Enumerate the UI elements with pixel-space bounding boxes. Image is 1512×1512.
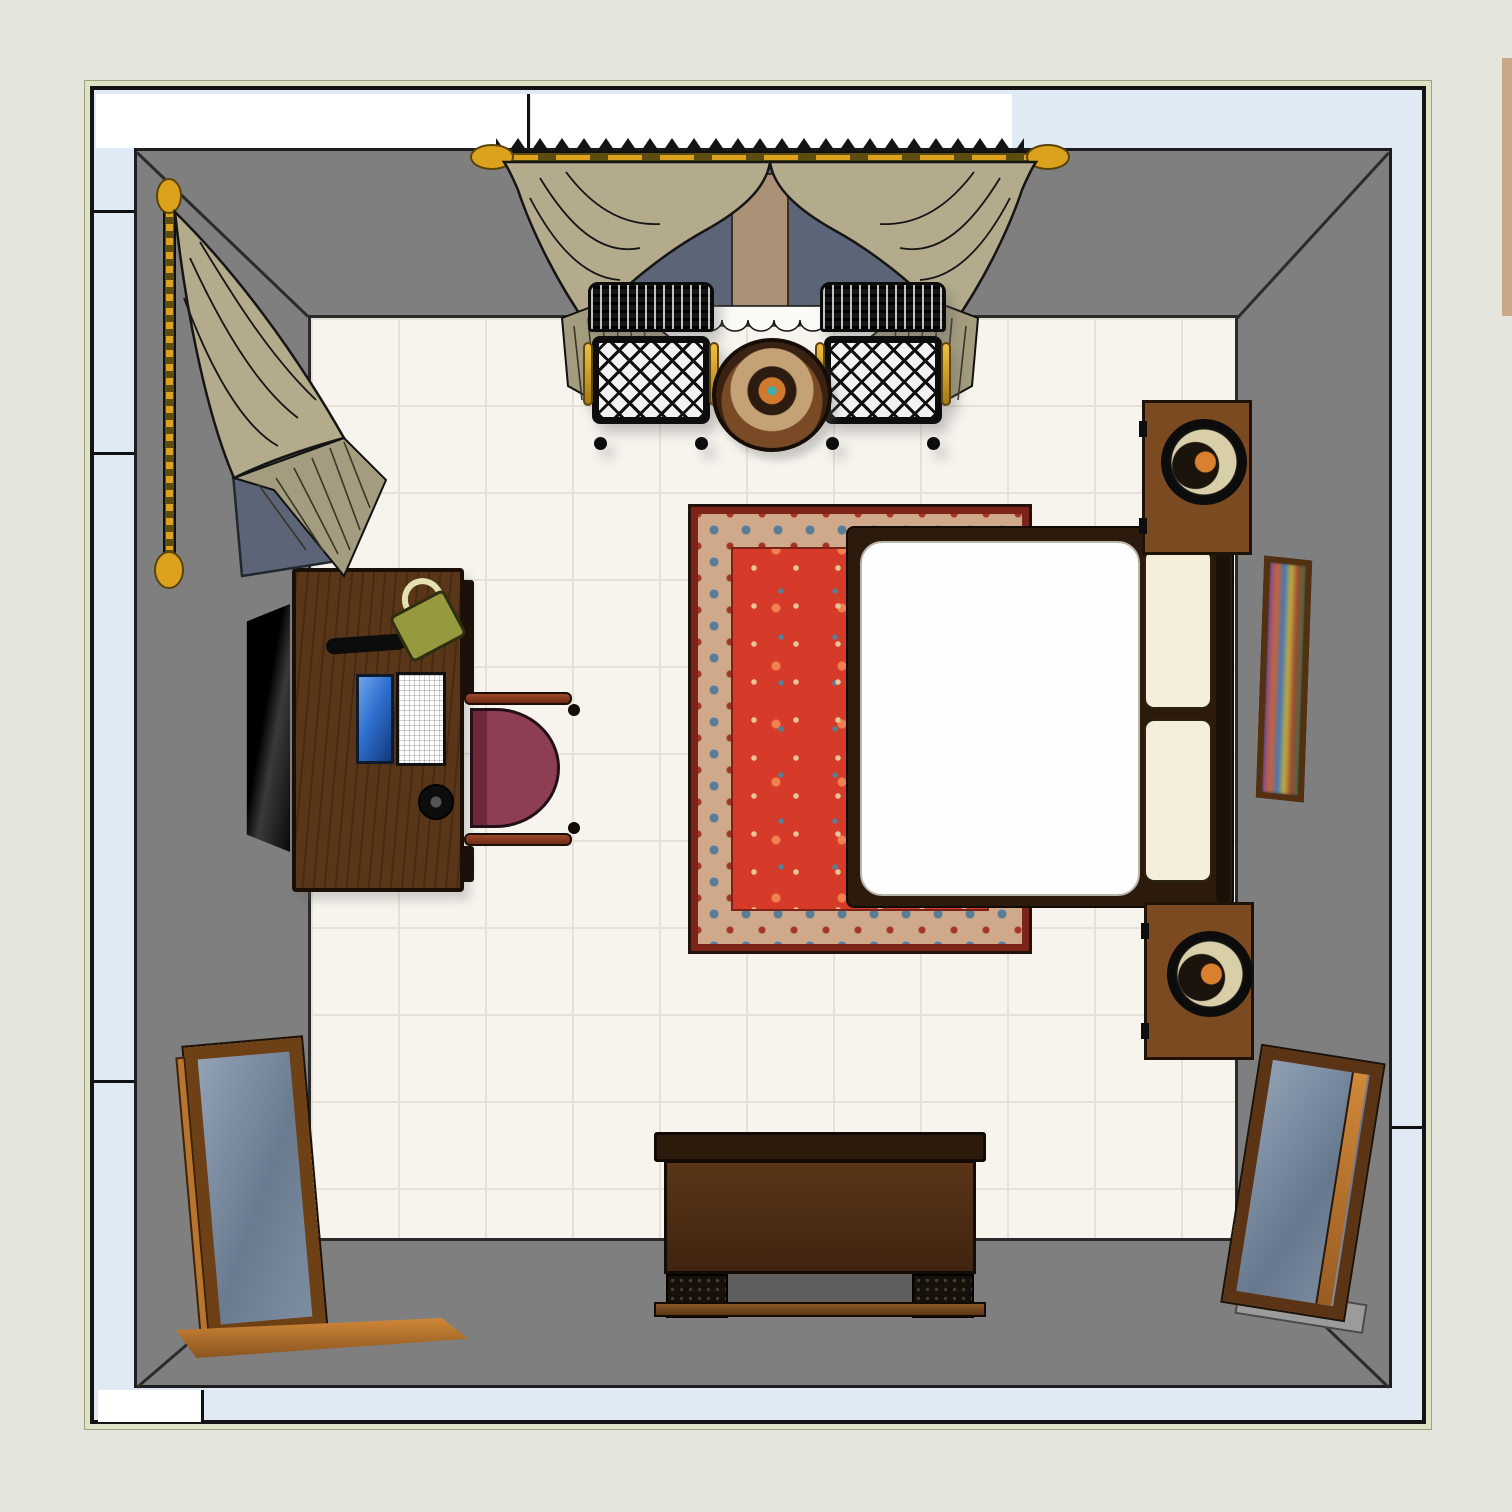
nightstand-bottom[interactable] bbox=[1144, 902, 1254, 1060]
dresser-front bbox=[664, 1160, 976, 1274]
chair-frame-post bbox=[941, 342, 951, 406]
table-lamp-icon[interactable] bbox=[1167, 931, 1253, 1017]
exterior-wall-top-left bbox=[96, 94, 530, 148]
laptop[interactable] bbox=[396, 672, 446, 766]
wall-tv[interactable] bbox=[242, 604, 290, 852]
floor-plan-canvas bbox=[0, 0, 1512, 1512]
drawer-knob bbox=[1141, 1023, 1149, 1039]
chair-armrest bbox=[464, 692, 572, 705]
desk-lamp[interactable] bbox=[326, 633, 407, 655]
siding-divider bbox=[94, 210, 136, 213]
wicker-chair-right[interactable] bbox=[816, 280, 950, 452]
desk[interactable] bbox=[292, 568, 464, 892]
wall-art-canvas bbox=[1262, 562, 1306, 796]
pillow bbox=[1144, 719, 1212, 882]
edge-panel-fragment bbox=[1502, 58, 1512, 316]
chair-foot bbox=[927, 437, 940, 450]
chair-foot bbox=[826, 437, 839, 450]
drawer-knob bbox=[1139, 518, 1147, 534]
table-lamp-icon[interactable] bbox=[1161, 419, 1247, 505]
chair-foot bbox=[568, 704, 580, 716]
chair-backrest bbox=[820, 282, 946, 332]
chair-seat bbox=[824, 336, 942, 424]
left-window-curtain[interactable] bbox=[138, 178, 408, 608]
chair-foot bbox=[594, 437, 607, 450]
siding-divider bbox=[94, 452, 136, 455]
wall-art[interactable] bbox=[1256, 556, 1312, 803]
desk-side-panel bbox=[460, 580, 474, 700]
desk-side-panel bbox=[460, 846, 474, 882]
drawer-knob bbox=[1141, 923, 1149, 939]
chair-foot bbox=[568, 822, 580, 834]
bed[interactable] bbox=[846, 526, 1234, 908]
dresser-top bbox=[654, 1132, 986, 1162]
floor-mirror-left[interactable] bbox=[183, 1037, 326, 1338]
exterior-wall-bottom bbox=[98, 1390, 204, 1422]
desk-chair[interactable] bbox=[460, 692, 576, 846]
dresser[interactable] bbox=[654, 1132, 986, 1320]
laptop-screen bbox=[356, 674, 394, 764]
desk-phone[interactable] bbox=[418, 784, 454, 820]
pillow bbox=[1144, 549, 1212, 709]
drawer-knob bbox=[1139, 421, 1147, 437]
chair-foot bbox=[695, 437, 708, 450]
nightstand-top[interactable] bbox=[1142, 400, 1252, 555]
wicker-chair-left[interactable] bbox=[584, 280, 718, 452]
headboard bbox=[1216, 534, 1230, 902]
round-side-table[interactable] bbox=[712, 338, 832, 452]
chair-armrest bbox=[464, 833, 572, 846]
chair-seat bbox=[592, 336, 710, 424]
mattress bbox=[860, 541, 1140, 896]
chair-backrest bbox=[588, 282, 714, 332]
siding-divider bbox=[94, 1080, 136, 1083]
chair-seat bbox=[470, 708, 560, 828]
rod-finial-icon bbox=[157, 179, 181, 213]
chair-frame-post bbox=[583, 342, 593, 406]
rod-finial-icon bbox=[155, 552, 183, 588]
dresser-base-rail bbox=[654, 1302, 986, 1317]
